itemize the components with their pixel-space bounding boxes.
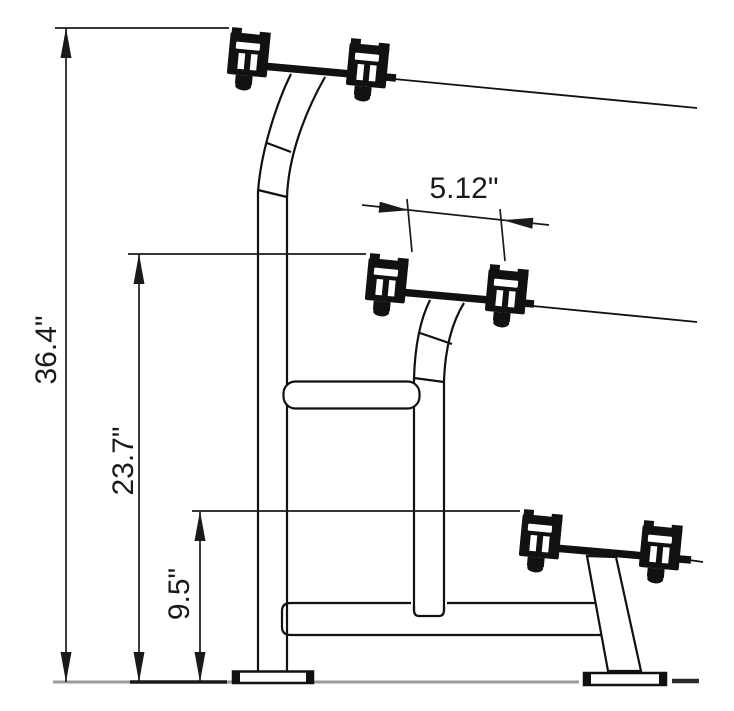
dimension-annotations: 36.4" 23.7" 9.5" 5.12" xyxy=(30,28,549,682)
tier3-left-saddle xyxy=(517,509,563,574)
front-upright-tube xyxy=(258,74,325,672)
lower-cross-brace xyxy=(282,603,601,635)
rear-foot-plate xyxy=(584,673,666,685)
middle-upright-bottom-cap xyxy=(414,606,444,616)
front-foot-right-cap xyxy=(306,672,313,684)
middle-upright-outer-line xyxy=(414,300,430,611)
arrow-total-bottom xyxy=(61,652,72,682)
upper-cross-brace xyxy=(284,382,420,409)
arrow-middle-top xyxy=(134,254,145,284)
rear-foot-left-cap xyxy=(584,673,591,685)
tier-bars-and-rails xyxy=(228,63,703,562)
tier2-right-saddle xyxy=(483,264,529,329)
dumbbell-rack-dimension-drawing: 36.4" 23.7" 9.5" 5.12" xyxy=(0,0,734,711)
tier1-rail xyxy=(394,79,697,108)
arrow-middle-bottom xyxy=(134,652,145,682)
front-foot-plate xyxy=(233,672,313,684)
middle-upright-tube xyxy=(414,300,464,616)
rear-foot-right-cap xyxy=(659,673,666,685)
arrow-spacing-right xyxy=(503,218,533,229)
lower-cross-brace-outline xyxy=(282,603,601,635)
tier1-left-saddle xyxy=(225,27,271,92)
dimension-label-middle-tier: 23.7" xyxy=(107,426,140,495)
extension-line-spacing-right xyxy=(500,209,505,261)
arrow-bottom-top xyxy=(195,511,206,541)
front-foot-left-cap xyxy=(233,672,240,684)
front-upright-weld-line-1 xyxy=(267,143,291,152)
tier2-left-saddle xyxy=(363,253,409,318)
dimension-label-saddle-spacing: 5.12" xyxy=(429,172,498,205)
arrow-spacing-left xyxy=(379,202,409,213)
front-upright-weld-line-2 xyxy=(258,190,287,197)
middle-upright-weld-line-2 xyxy=(414,378,444,382)
front-upright-inner-line xyxy=(287,77,325,672)
arrow-total-top xyxy=(61,28,72,58)
drawing-canvas: 36.4" 23.7" 9.5" 5.12" xyxy=(0,0,734,711)
dimension-label-bottom-tier: 9.5" xyxy=(163,568,196,620)
tier2-rail xyxy=(533,306,697,322)
dumbbell-saddles xyxy=(225,27,683,585)
dimension-label-total-height: 36.4" xyxy=(30,315,63,384)
tier3-right-saddle xyxy=(637,520,683,585)
middle-upright-weld-line-1 xyxy=(420,333,452,344)
tier1-right-saddle xyxy=(344,38,390,103)
rear-support-strut xyxy=(587,556,641,671)
extension-line-spacing-left xyxy=(407,199,412,252)
arrow-bottom-bottom xyxy=(195,652,206,682)
tier3-rail xyxy=(689,560,703,562)
middle-upright-inner-line xyxy=(444,303,464,611)
